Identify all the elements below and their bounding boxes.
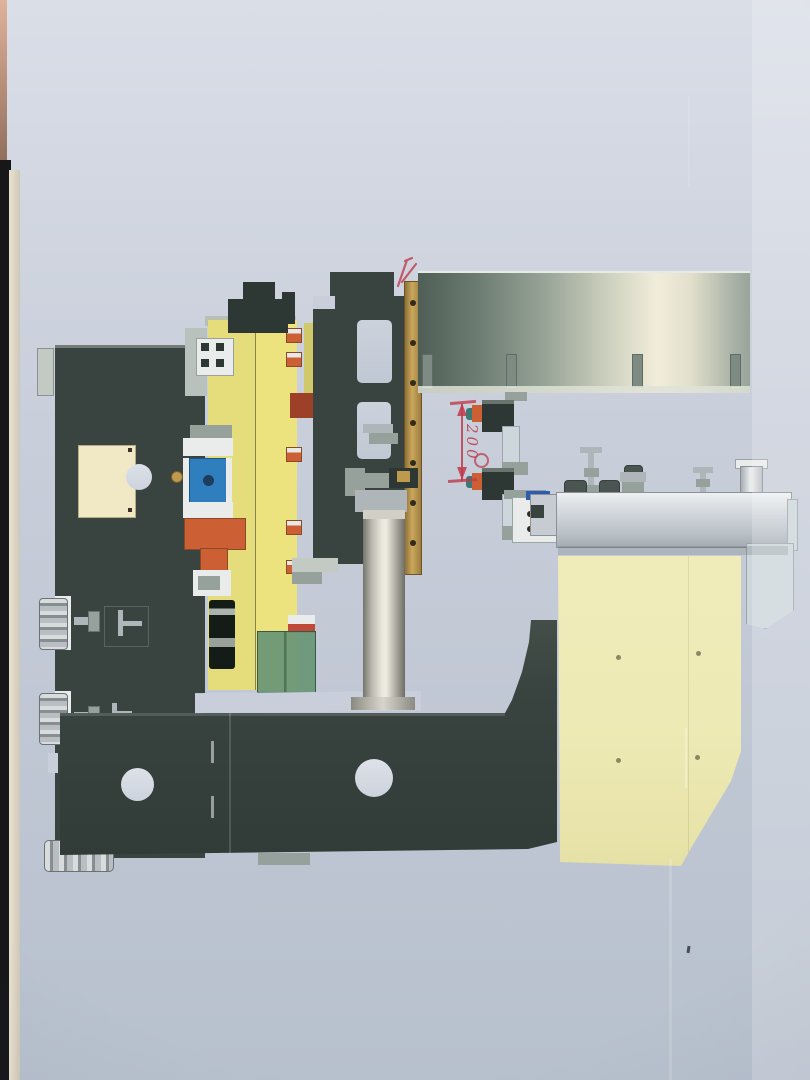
table-notch <box>531 505 544 518</box>
panel-slot <box>506 354 517 388</box>
green-glass-guard-box <box>257 631 316 693</box>
foot-bolt-head <box>88 611 100 632</box>
window-bracket <box>363 424 393 433</box>
panel-slot <box>632 354 643 388</box>
plate-pin-hole <box>695 755 700 760</box>
yellow-green-strip <box>304 323 313 397</box>
base-tick <box>211 741 214 763</box>
panel-slot <box>422 354 433 388</box>
hydraulic-cylinder <box>363 510 405 706</box>
mount-plate-bottom <box>183 502 233 518</box>
plate-notch <box>313 296 335 309</box>
frame-pocket-outline <box>104 606 149 647</box>
frame-left-notch <box>48 753 58 773</box>
plate-window-upper <box>357 320 392 383</box>
paper-crease <box>688 96 690 186</box>
blue-motor-block <box>189 458 228 504</box>
cylinder-cap <box>363 510 405 519</box>
t-bolt-horizontal <box>118 621 142 626</box>
block-screw <box>128 508 132 512</box>
orange-clamp-chip <box>286 447 302 462</box>
photo-of-cad-drawing: 200 <box>0 0 810 1080</box>
base-bottom-tab <box>258 853 310 865</box>
rail-hole <box>410 500 416 506</box>
rail-hole <box>410 340 416 346</box>
plate-seam <box>688 556 689 866</box>
cylinder-flange <box>351 697 415 710</box>
orange-clamp-chip <box>286 352 302 367</box>
spacer-block <box>190 425 232 438</box>
plate-pin-hole <box>616 655 621 660</box>
plate-crease <box>685 728 687 788</box>
brass-nut <box>171 471 183 483</box>
base-tick <box>211 796 214 818</box>
cylinder-valve-block <box>389 468 418 488</box>
rail-hole <box>410 380 416 386</box>
screw-head <box>216 359 224 367</box>
plate-pin-hole <box>696 651 701 656</box>
orange-clamp-chip <box>286 520 302 535</box>
frame-top-tab <box>37 348 54 396</box>
rail-hole <box>410 460 416 466</box>
paper-light-band <box>752 0 810 1080</box>
cylinder-mount-step <box>355 490 407 512</box>
base-hole-center <box>355 759 393 797</box>
stack-bolt-plate <box>620 472 646 482</box>
t-bolt-nut <box>696 479 710 487</box>
block-screw <box>128 448 132 452</box>
screw-head <box>201 343 209 351</box>
connector-block <box>196 338 234 376</box>
cream-block-notch <box>126 464 152 490</box>
panel-slot <box>730 354 741 388</box>
guard-top-plate <box>288 615 315 624</box>
dimension-arrow-top <box>457 403 467 416</box>
orange-mount-bracket <box>184 518 246 550</box>
leveling-foot-upper <box>39 598 68 650</box>
orange-clamp-chip <box>286 328 302 343</box>
pale-yellow-cover-plate <box>558 556 742 868</box>
red-scribble-mark <box>392 252 424 290</box>
top-block <box>228 299 288 333</box>
rail-hole <box>410 420 416 426</box>
screw-head <box>201 359 209 367</box>
mount-plate-top <box>183 438 233 456</box>
dark-roller <box>209 600 235 669</box>
large-metal-guard-panel <box>418 271 750 393</box>
guide-insert <box>198 576 220 590</box>
top-post <box>282 292 295 324</box>
plate-upper-extension <box>330 272 394 299</box>
paper-speck <box>687 946 691 953</box>
base-scratch-line <box>229 713 231 855</box>
photo-edge-pink <box>0 0 7 175</box>
plate-pin-hole <box>616 758 621 763</box>
lower-guide-block <box>193 570 231 596</box>
rail-hole <box>410 300 416 306</box>
paper-edge-cream <box>9 170 20 1080</box>
orange-bracket-arm <box>200 548 228 572</box>
paper-crease <box>669 858 672 1080</box>
base-hole-left <box>121 768 154 801</box>
motor-shaft-dot <box>203 475 214 486</box>
base-top-ridge <box>60 713 505 716</box>
red-circle-mark <box>474 453 489 468</box>
top-block <box>243 282 275 302</box>
panel-bottom-lip <box>418 386 750 393</box>
motor-flange <box>226 458 232 502</box>
t-post-collar <box>584 468 599 477</box>
cream-block-on-frame <box>78 445 136 518</box>
plate-step <box>292 558 338 572</box>
rail-hole <box>410 540 416 546</box>
window-bracket <box>369 433 398 444</box>
screw-head <box>216 343 224 351</box>
valve-brass-chip <box>397 471 410 482</box>
plate-step <box>292 572 322 584</box>
